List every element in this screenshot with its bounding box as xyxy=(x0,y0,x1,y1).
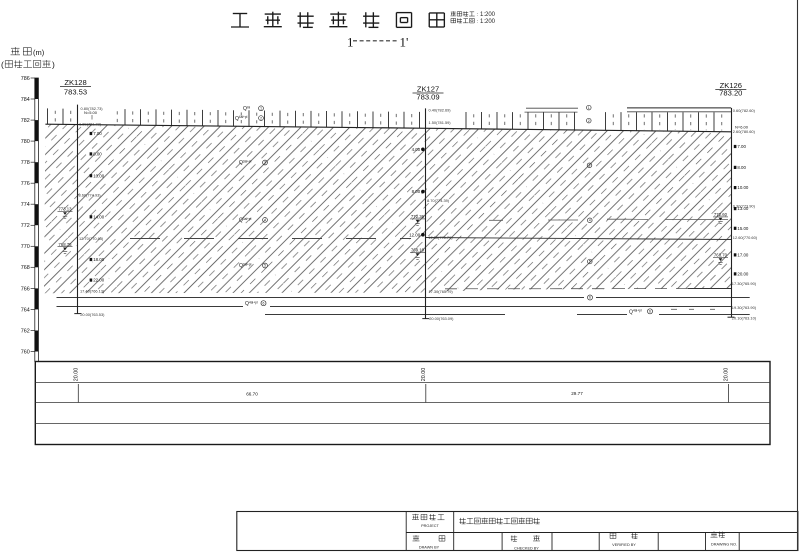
svg-text:776: 776 xyxy=(21,181,30,187)
svg-text:17.40(766.13): 17.40(766.13) xyxy=(80,289,105,294)
svg-text:4: 4 xyxy=(264,218,266,222)
svg-text:20.00(763.09): 20.00(763.09) xyxy=(429,316,454,321)
svg-text:8.00: 8.00 xyxy=(737,165,746,170)
svg-text:8.60(774.93): 8.60(774.93) xyxy=(79,193,102,198)
svg-text:5: 5 xyxy=(264,264,266,268)
svg-text:CHECKED BY: CHECKED BY xyxy=(514,547,539,551)
svg-text:12.60(770.60): 12.60(770.60) xyxy=(733,235,758,240)
svg-text:4al+pl: 4al+pl xyxy=(239,115,248,119)
svg-text:(m): (m) xyxy=(33,48,45,57)
svg-text:20.00: 20.00 xyxy=(73,368,79,382)
svg-text:4al+pl: 4al+pl xyxy=(249,301,258,305)
svg-text:10.00: 10.00 xyxy=(737,185,749,190)
svg-text:20.00: 20.00 xyxy=(724,368,730,382)
svg-text:768: 768 xyxy=(21,265,30,271)
svg-text:2.60(780.60): 2.60(780.60) xyxy=(733,129,756,134)
svg-text:20.10(763.10): 20.10(763.10) xyxy=(732,316,757,321)
svg-text:PROJECT: PROJECT xyxy=(421,524,439,528)
svg-text:773.13: 773.13 xyxy=(58,207,72,212)
svg-text:778: 778 xyxy=(21,160,30,166)
svg-text:764: 764 xyxy=(21,307,30,313)
svg-text:10.00: 10.00 xyxy=(93,173,105,178)
svg-text:780: 780 xyxy=(21,139,30,145)
svg-text:3al+pl: 3al+pl xyxy=(243,160,252,164)
svg-text:ZK128: ZK128 xyxy=(64,78,86,87)
svg-text:6: 6 xyxy=(589,296,591,300)
svg-text:8.00: 8.00 xyxy=(93,152,102,157)
svg-text:17.00: 17.00 xyxy=(737,253,749,258)
svg-text:772: 772 xyxy=(21,223,30,229)
svg-text:760: 760 xyxy=(21,349,30,355)
svg-text:22.00: 22.00 xyxy=(93,278,105,283)
svg-text:29.77: 29.77 xyxy=(571,391,583,396)
svg-text:15.00: 15.00 xyxy=(737,226,749,231)
svg-text:783.53: 783.53 xyxy=(64,88,87,97)
svg-text:5: 5 xyxy=(589,260,591,264)
svg-text:4: 4 xyxy=(589,219,591,223)
svg-text:3al+pl: 3al+pl xyxy=(243,217,252,221)
svg-text:6: 6 xyxy=(649,310,651,314)
svg-text:782: 782 xyxy=(21,118,30,124)
svg-text:769.19: 769.19 xyxy=(411,248,425,253)
svg-text:783.20: 783.20 xyxy=(719,88,742,97)
svg-text::: : xyxy=(477,19,478,25)
svg-text:768.75: 768.75 xyxy=(58,242,72,247)
svg-text:ml: ml xyxy=(247,105,251,109)
svg-text:12.30(770.79): 12.30(770.79) xyxy=(428,235,453,240)
svg-text:6: 6 xyxy=(263,301,265,305)
svg-text:DRAWING NO.: DRAWING NO. xyxy=(711,542,737,546)
svg-text::: : xyxy=(477,12,478,18)
svg-text:766: 766 xyxy=(21,286,30,292)
svg-text:3: 3 xyxy=(589,164,591,168)
svg-text:1: 1 xyxy=(588,106,590,110)
svg-text:7.00: 7.00 xyxy=(737,144,746,149)
svg-text:8.00: 8.00 xyxy=(412,189,421,194)
svg-text:12.00: 12.00 xyxy=(409,232,421,237)
svg-text:18.00: 18.00 xyxy=(93,257,105,262)
svg-text:17.30(765.79): 17.30(765.79) xyxy=(429,289,454,294)
svg-text:12.70(770.83): 12.70(770.83) xyxy=(79,236,104,241)
svg-text:): ) xyxy=(52,60,55,70)
svg-text:2: 2 xyxy=(260,116,262,120)
svg-text:1: 1 xyxy=(347,35,354,50)
svg-text:14.00: 14.00 xyxy=(93,214,105,219)
svg-text:1:200: 1:200 xyxy=(480,19,496,25)
svg-text:(: ( xyxy=(1,60,4,70)
svg-text:0.40(782.69): 0.40(782.69) xyxy=(429,108,452,113)
svg-text:784: 784 xyxy=(21,97,30,103)
svg-text:3: 3 xyxy=(264,161,266,165)
svg-text:4.00: 4.00 xyxy=(412,147,421,152)
svg-text:N=5.00: N=5.00 xyxy=(84,110,98,115)
svg-text:783.09: 783.09 xyxy=(416,92,439,101)
svg-text:1: 1 xyxy=(260,107,262,111)
svg-text:17.30(765.90): 17.30(765.90) xyxy=(732,281,757,286)
svg-text:7.00: 7.00 xyxy=(93,131,102,136)
svg-text:786: 786 xyxy=(21,76,30,82)
svg-text:772.36: 772.36 xyxy=(411,214,425,219)
svg-text:0.60(782.60): 0.60(782.60) xyxy=(733,108,756,113)
svg-text:20.00(763.53): 20.00(763.53) xyxy=(80,312,105,317)
svg-text:3al+pl: 3al+pl xyxy=(243,263,252,267)
svg-text:1': 1' xyxy=(400,35,409,50)
svg-text:772.60: 772.60 xyxy=(714,212,728,217)
svg-text:8.70(774.39): 8.70(774.39) xyxy=(427,198,450,203)
svg-text:1.80(781.73): 1.80(781.73) xyxy=(79,121,102,126)
svg-text:2: 2 xyxy=(588,119,590,123)
svg-text:774: 774 xyxy=(21,202,30,208)
svg-text:20.00: 20.00 xyxy=(421,368,427,382)
svg-text:762: 762 xyxy=(21,328,30,334)
svg-text:768.70: 768.70 xyxy=(714,253,728,258)
svg-text:20.00: 20.00 xyxy=(737,272,749,277)
svg-text:1.50(781.59): 1.50(781.59) xyxy=(429,120,452,125)
svg-text:19.30(763.90): 19.30(763.90) xyxy=(732,305,757,310)
svg-text:770: 770 xyxy=(21,244,30,250)
svg-text:1:200: 1:200 xyxy=(480,12,496,18)
svg-text:DRAWN BY: DRAWN BY xyxy=(419,546,440,550)
svg-text:VERIFIED BY: VERIFIED BY xyxy=(612,543,636,547)
svg-text:4al+pl: 4al+pl xyxy=(633,309,642,313)
svg-text:66.70: 66.70 xyxy=(246,391,258,396)
svg-text:9.30(773.90): 9.30(773.90) xyxy=(733,203,756,208)
